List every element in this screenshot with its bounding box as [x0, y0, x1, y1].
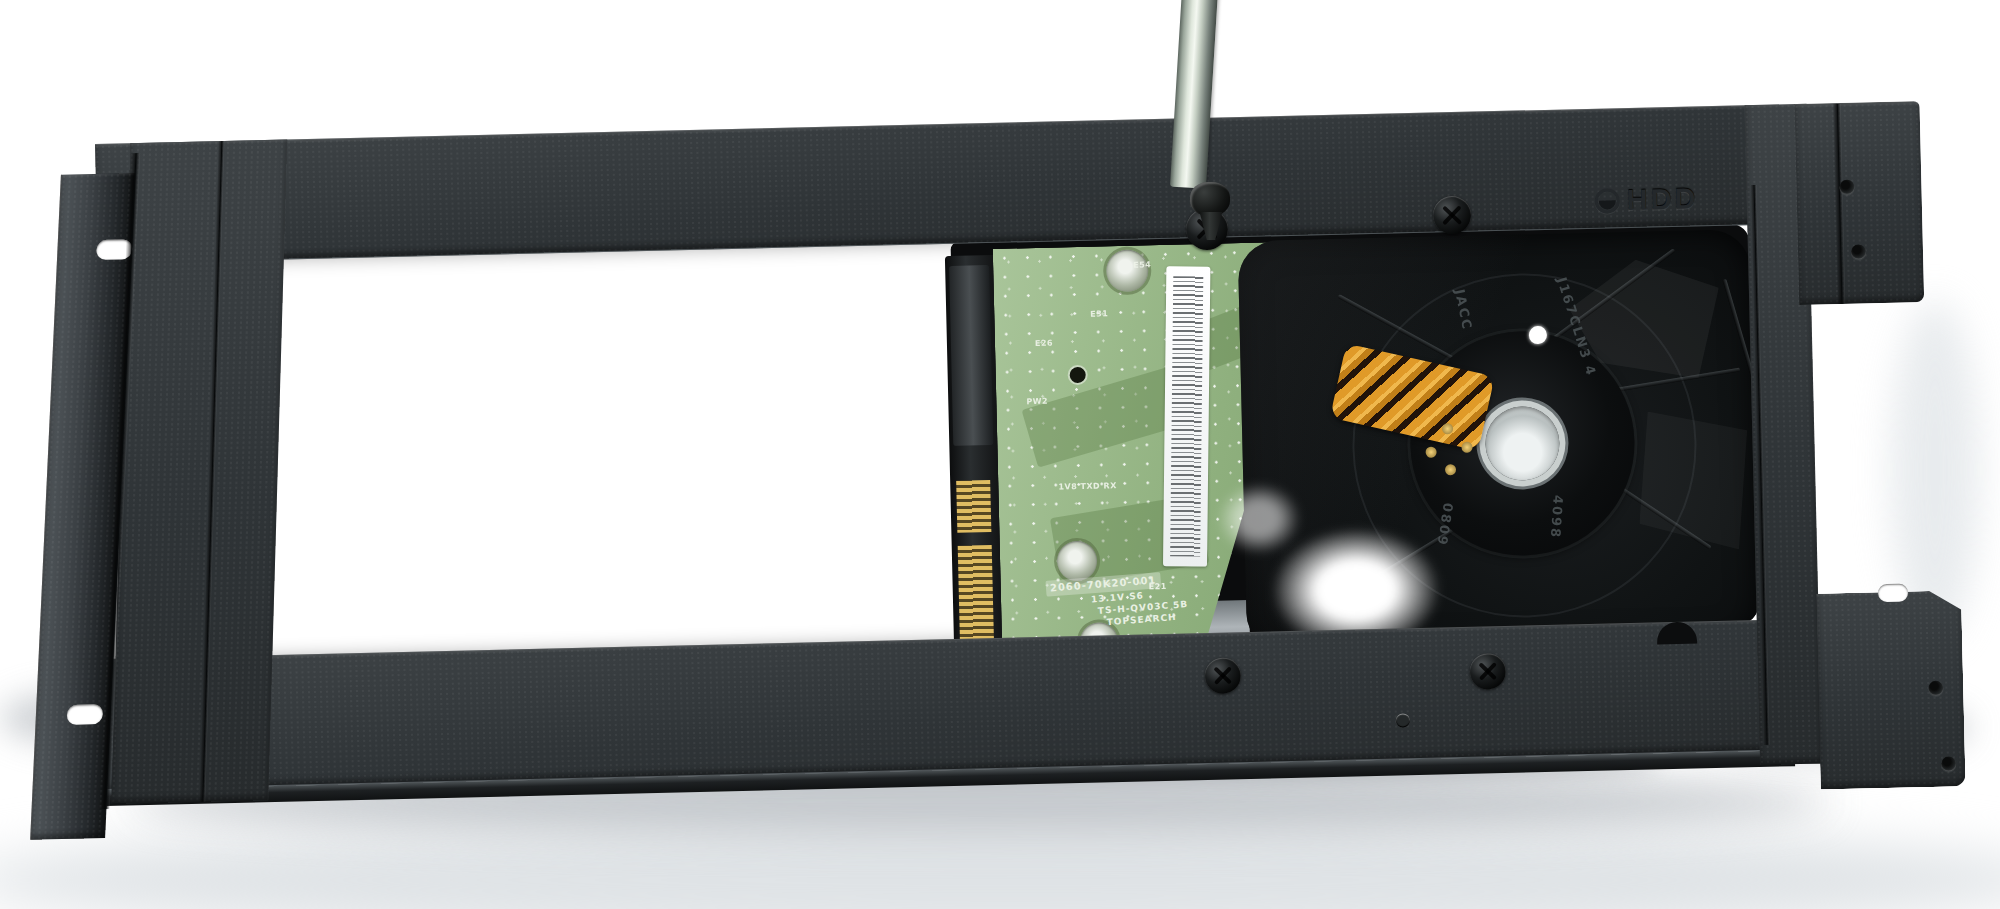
tab-bend-crease — [1833, 104, 1846, 304]
casting-engraving: 4098 — [1548, 495, 1566, 540]
silkscreen-label: E54 — [1133, 261, 1151, 269]
sata-power-pins — [958, 545, 994, 650]
top-right-tab — [1795, 101, 1925, 305]
flange-hook-notch — [66, 704, 103, 725]
hdd-mounting-bracket: E54 E28 E56 E66 E34 E26 E31 E30 E52 E32 … — [55, 102, 1881, 844]
hdd-emboss-label: HDD — [1626, 182, 1699, 217]
barcode — [1170, 276, 1203, 556]
tab-hook-notch — [1878, 583, 1908, 602]
barcode-label — [1163, 266, 1210, 566]
screwdriver-tip — [1190, 182, 1230, 216]
silkscreen-label: E31 — [1090, 310, 1108, 318]
bracket-opening: E54 E28 E56 E66 E34 E26 E31 E30 E52 E32 … — [233, 223, 1759, 660]
silkscreen-label: 1V8 TXD RX — [1058, 482, 1117, 491]
pcb-via — [1070, 367, 1086, 383]
screwdriver-tip-point — [1196, 212, 1226, 240]
screwdriver — [1178, 0, 1226, 254]
silkscreen-label: PW2 — [1026, 398, 1048, 407]
left-side-rail — [111, 140, 287, 804]
bottom-right-tab — [1816, 590, 1966, 789]
tab-dimple — [1839, 180, 1854, 195]
hdd-emboss: HDD — [1594, 182, 1699, 217]
screwdriver-shaft — [1170, 0, 1218, 189]
pcb-screw-pad — [1106, 249, 1149, 292]
tab-dimple — [1941, 756, 1956, 771]
tab-dimple — [1928, 681, 1943, 696]
sata-data-pins — [956, 480, 991, 533]
photo: E54 E28 E56 E66 E34 E26 E31 E30 E52 E32 … — [0, 0, 2000, 909]
tab-dimple — [1851, 244, 1866, 259]
silkscreen-label: E26 — [1035, 340, 1053, 348]
screw-head-icon — [1594, 188, 1620, 214]
connector-housing — [949, 265, 993, 446]
